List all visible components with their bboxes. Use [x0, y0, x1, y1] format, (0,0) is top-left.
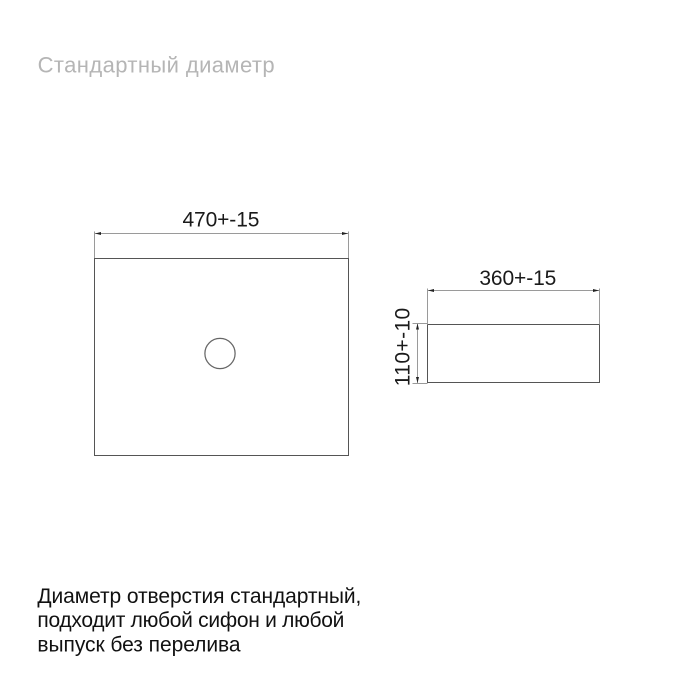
svg-text:360+-15: 360+-15	[479, 267, 556, 290]
svg-text:470+-15: 470+-15	[182, 209, 259, 232]
svg-text:выпуск без перелива: выпуск без перелива	[37, 633, 241, 656]
svg-text:Диаметр отверстия стандартный,: Диаметр отверстия стандартный,	[37, 585, 361, 608]
svg-text:подходит любой сифон и любой: подходит любой сифон и любой	[37, 609, 344, 632]
svg-text:Стандартный диаметр: Стандартный диаметр	[38, 53, 275, 78]
svg-text:110+-10: 110+-10	[392, 308, 415, 387]
